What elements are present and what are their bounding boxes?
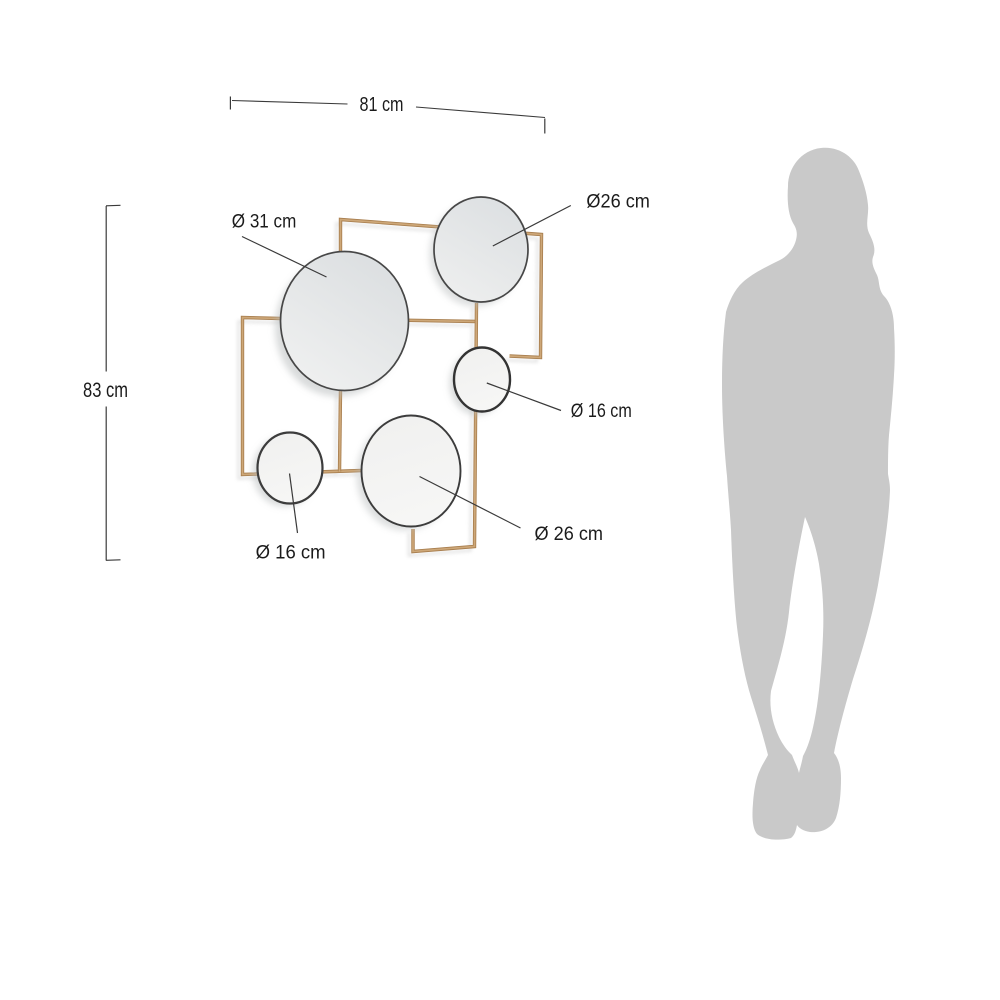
svg-text:Ø 31 cm: Ø 31 cm (232, 211, 296, 233)
svg-text:Ø26 cm: Ø26 cm (586, 191, 650, 213)
svg-text:Ø 16 cm: Ø 16 cm (256, 542, 326, 564)
svg-text:Ø 16 cm: Ø 16 cm (571, 400, 632, 422)
svg-text:Ø 26 cm: Ø 26 cm (535, 523, 604, 545)
svg-text:81 cm: 81 cm (360, 94, 404, 116)
svg-text:83 cm: 83 cm (83, 378, 128, 402)
